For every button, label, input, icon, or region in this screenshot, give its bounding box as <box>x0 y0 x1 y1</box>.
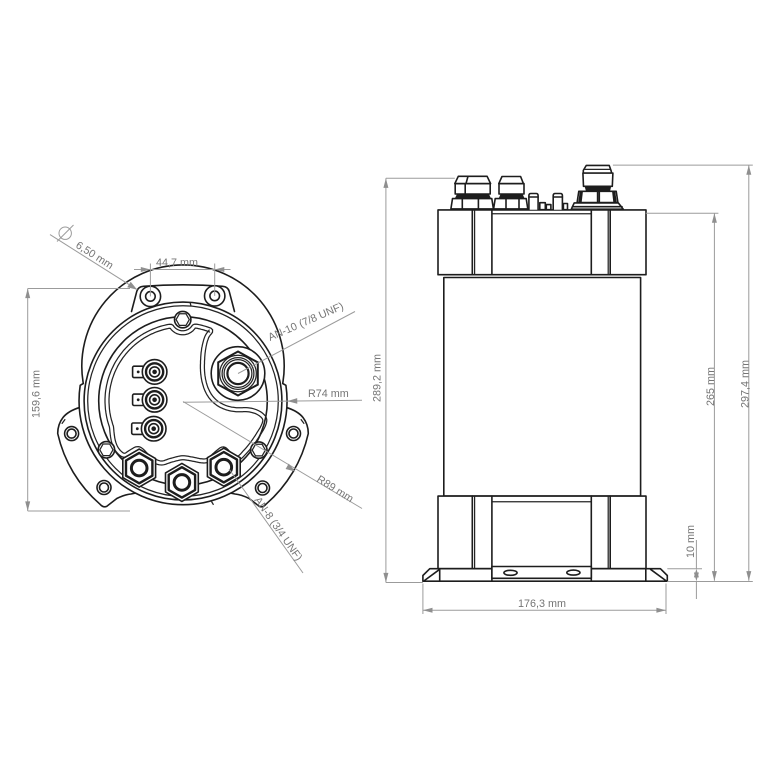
svg-text:159,6 mm: 159,6 mm <box>31 370 43 418</box>
svg-text:10 mm: 10 mm <box>685 525 697 558</box>
svg-text:289,2 mm: 289,2 mm <box>372 354 384 402</box>
svg-text:44,7 mm: 44,7 mm <box>156 257 198 269</box>
svg-text:176,3 mm: 176,3 mm <box>518 598 566 610</box>
svg-text:265 mm: 265 mm <box>705 367 717 406</box>
svg-text:297,4 mm: 297,4 mm <box>740 360 752 408</box>
svg-text:R74 mm: R74 mm <box>308 388 349 400</box>
